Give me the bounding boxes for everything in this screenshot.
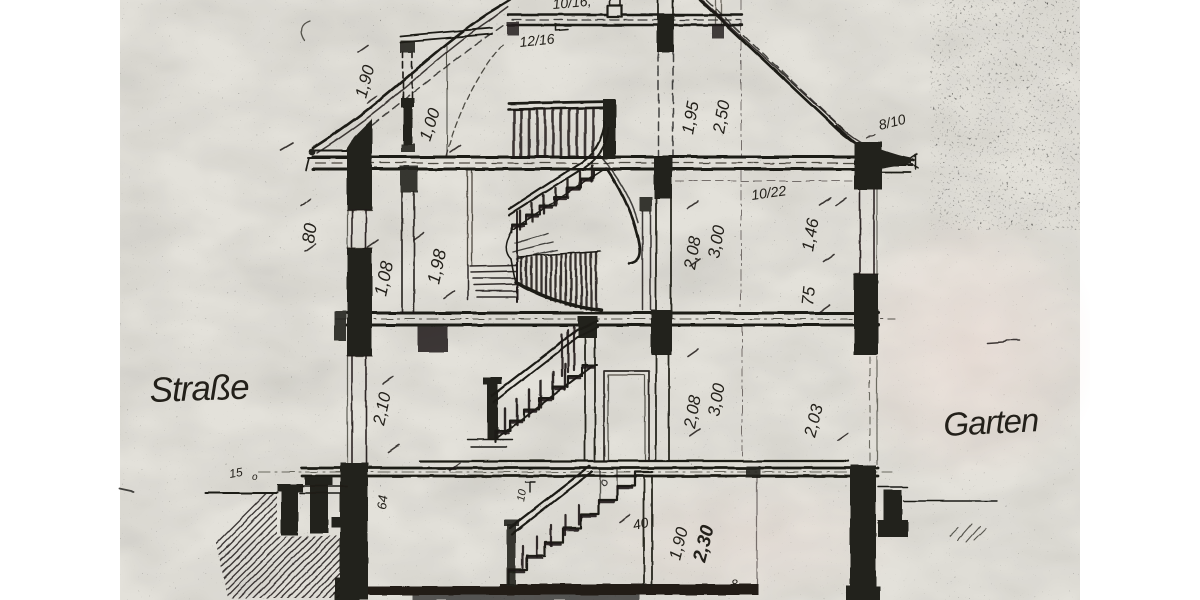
- svg-text:Straße: Straße: [149, 368, 250, 410]
- svg-text:64: 64: [374, 494, 390, 510]
- svg-text:15: 15: [228, 465, 244, 481]
- svg-text:75: 75: [798, 285, 819, 306]
- svg-text:8: 8: [731, 577, 738, 591]
- svg-text:Garten: Garten: [942, 401, 1039, 443]
- svg-text:80: 80: [298, 222, 321, 245]
- svg-text:o: o: [252, 472, 258, 483]
